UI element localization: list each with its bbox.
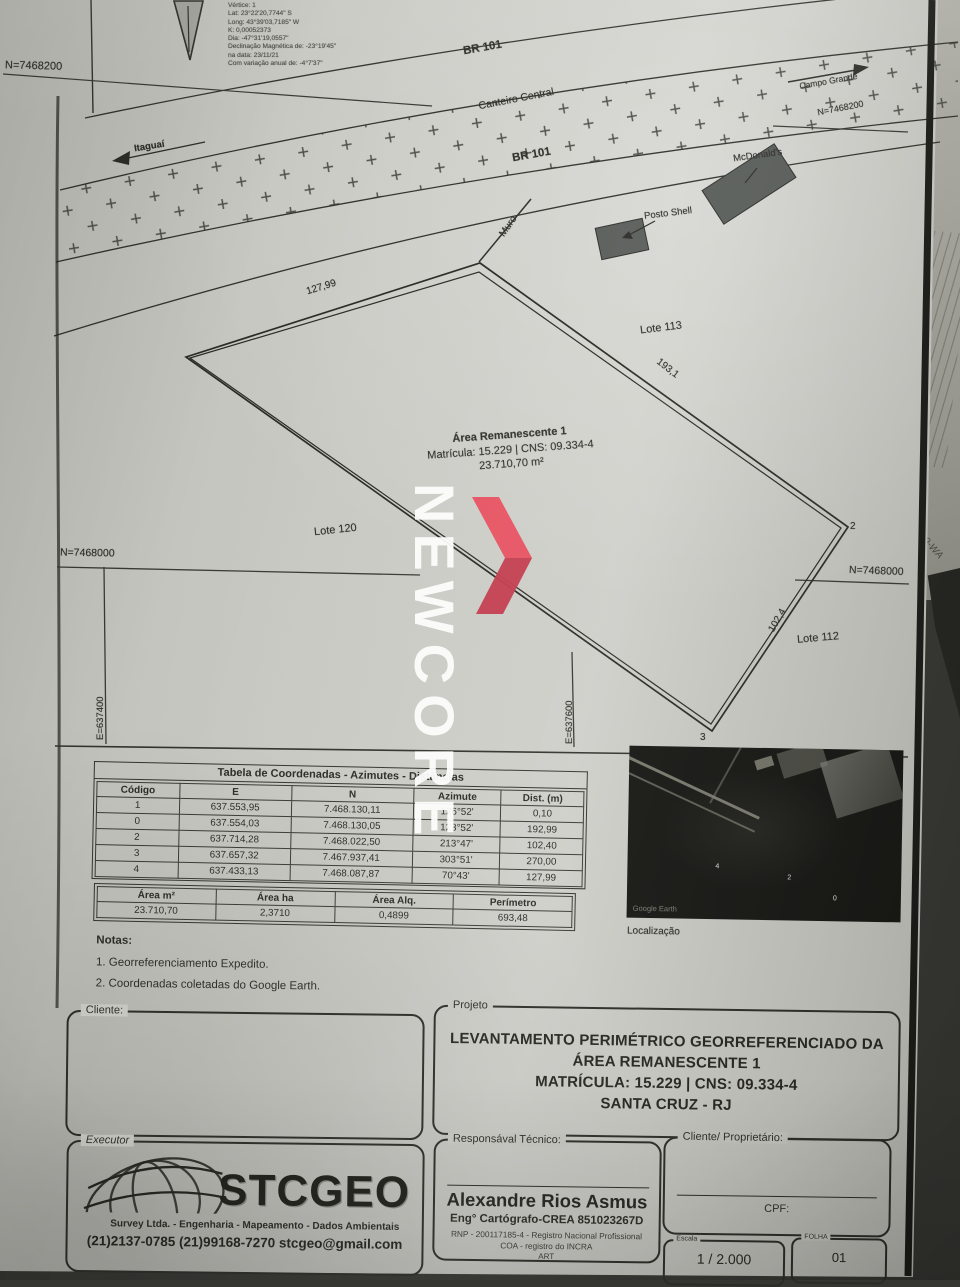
sat-road-streak	[627, 751, 760, 819]
folha-box-label: FOLHA	[801, 1233, 830, 1240]
cell: Dist. (m)	[501, 790, 584, 808]
cell: 0,10	[501, 806, 584, 824]
projeto-box: Projeto LEVANTAMENTO PERIMÉTRICO GEORREF…	[432, 1005, 901, 1142]
vertex-label-2: 2	[850, 521, 856, 532]
parcel-outline-outer	[186, 263, 848, 731]
itaguai-arrowhead	[112, 151, 130, 165]
parcel-outline-inner	[190, 272, 841, 724]
cell: 1. Georreferenciamento Expedito.	[96, 956, 269, 970]
notes-title: Notas:	[96, 930, 321, 954]
sat-road-streak	[627, 767, 756, 833]
notes-list: 1. Georreferenciamento Expedito.2. Coord…	[96, 952, 321, 997]
cell: K: 0,00052373	[228, 27, 271, 34]
row: Lat: 23°22'20,7744" S	[228, 10, 423, 18]
sat-building-block	[777, 746, 829, 779]
projeto-description: LEVANTAMENTO PERIMÉTRICO GEORREFERENCIAD…	[434, 1007, 898, 1118]
cpf-label: CPF:	[665, 1201, 889, 1216]
localization-satellite-image: 4 2 0 Google Earth	[627, 746, 904, 923]
vertex-label-3: 3	[700, 732, 706, 743]
escala-value: 1 / 2.000	[665, 1250, 783, 1268]
responsavel-art: ART	[434, 1250, 658, 1262]
cell: 127,99	[499, 869, 582, 887]
cell: Lat: 23°22'20,7744" S	[228, 10, 292, 17]
grid-label-n7468000-left: N=7468000	[60, 547, 115, 560]
cell: ÁREA REMANESCENTE 1	[572, 1053, 761, 1073]
cell: Com variação anual de: -4°7'37"	[228, 60, 323, 67]
folha-box: FOLHA 01	[791, 1237, 888, 1284]
executor-box-label: Executor	[81, 1134, 135, 1147]
row: 2. Coordenadas coletadas do Google Earth…	[96, 973, 321, 997]
row: na data: 23/11/21	[228, 52, 423, 60]
sat-vertex-digit: 4	[715, 863, 719, 870]
responsavel-box-label: Responsával Técnico:	[448, 1133, 566, 1147]
gridline-n7468000-left	[57, 567, 420, 575]
cell: na data: 23/11/21	[228, 52, 279, 59]
gridline-n7468200-left	[3, 74, 432, 106]
cell: 2	[95, 829, 178, 847]
proprietario-line	[677, 1195, 877, 1199]
cell: Dia: -47°31'19,0557"	[228, 35, 289, 42]
cell: 2. Coordenadas coletadas do Google Earth…	[96, 977, 321, 992]
shell-building	[595, 218, 649, 259]
row: Com variação anual de: -4°7'37"	[228, 60, 423, 68]
cell: 0,4899	[334, 907, 453, 925]
cliente-box: Cliente:	[65, 1010, 425, 1140]
responsavel-name: Alexandre Rios Asmus	[435, 1188, 659, 1213]
cell: SANTA CRUZ - RJ	[600, 1095, 732, 1114]
cell: Azimute	[413, 788, 501, 806]
cell: Código	[96, 781, 179, 799]
proprietario-box-label: Cliente/ Proprietário:	[678, 1131, 788, 1145]
cell: 126°52'	[413, 804, 501, 822]
signature-line	[447, 1185, 649, 1189]
cell: 270,00	[500, 853, 583, 871]
escala-box-label: Escala	[673, 1235, 700, 1242]
folha-value: 01	[793, 1249, 885, 1265]
executor-box: Executor STCGEO Survey Ltda. - Engenhari…	[65, 1140, 425, 1276]
frame-right-border	[908, 0, 932, 1276]
cell: Vértice: 1	[228, 2, 256, 9]
row: K: 0,00052373	[228, 27, 423, 35]
cell: 70°43'	[412, 867, 500, 885]
cell: 102,40	[500, 837, 583, 855]
google-earth-credit: Google Earth	[633, 904, 677, 914]
cell: Long: 43°39'03,7185" W	[228, 19, 299, 26]
cell: 1	[96, 797, 179, 815]
responsavel-box: Responsával Técnico: Alexandre Rios Asmu…	[432, 1138, 662, 1263]
proprietario-box: Cliente/ Proprietário: CPF:	[662, 1136, 891, 1237]
sat-building-block	[820, 746, 903, 819]
grid-label-n7468200-left: N=7468200	[5, 59, 62, 72]
cell: 303°51'	[412, 851, 500, 869]
cell: 192,99	[500, 821, 583, 839]
cell: 637.433,13	[178, 862, 290, 880]
cell: 3	[95, 845, 178, 863]
cell: 123°52'	[413, 820, 501, 838]
sat-vertex-digit: 0	[833, 895, 837, 902]
row: Long: 43°39'03,7185" W	[228, 19, 423, 27]
cell: 4	[95, 861, 178, 879]
cell: 0	[96, 813, 179, 831]
cell: 7.468.087,87	[290, 865, 412, 883]
cell: 23.710,70	[96, 902, 215, 920]
vertex-meta-block: Vértice: 1Lat: 23°22'20,7744" SLong: 43°…	[228, 2, 423, 68]
sat-building-block	[754, 756, 774, 771]
stcgeo-tagline: Survey Ltda. - Engenharia - Mapeamento -…	[94, 1218, 416, 1233]
cell: MATRÍCULA: 15.229 | CNS: 09.334-4	[535, 1073, 797, 1094]
projeto-box-label: Projeto	[448, 999, 493, 1012]
globe-icon	[80, 1146, 231, 1214]
grid-label-e637400: E=637400	[95, 696, 106, 740]
coordinates-table-body: 1637.553,957.468.130,11126°52'0,100637.5…	[95, 797, 584, 887]
responsavel-title: Eng° Cartógrafo-CREA 851023267D	[435, 1212, 659, 1227]
cell: 213°47'	[412, 835, 500, 853]
stcgeo-contact: (21)2137-0785 (21)99168-7270 stcgeo@gmai…	[71, 1233, 417, 1252]
localization-caption: Localização	[627, 926, 680, 938]
coordinates-table: Tabela de Coordenadas - Azimutes - Distâ…	[92, 761, 588, 890]
cell: Declinação Magnética de: -23°19'45"	[228, 43, 336, 50]
sat-road-streak	[709, 746, 743, 804]
grid-label-n7468000-right: N=7468000	[849, 564, 904, 578]
grid-label-e637600: E=637600	[564, 700, 575, 744]
cell: 2,3710	[215, 905, 334, 923]
sat-vertex-digit: 2	[787, 874, 791, 881]
cell: LEVANTAMENTO PERIMÉTRICO GEORREFERENCIAD…	[450, 1030, 884, 1053]
stcgeo-logo: STCGEO	[218, 1166, 410, 1218]
notes-section: Notas: 1. Georreferenciamento Expedito.2…	[96, 930, 321, 997]
cell: 693,48	[453, 910, 572, 928]
cliente-box-label: Cliente:	[81, 1004, 128, 1017]
edge-line-topleft	[91, 0, 93, 113]
row: Declinação Magnética de: -23°19'45"	[228, 43, 423, 51]
